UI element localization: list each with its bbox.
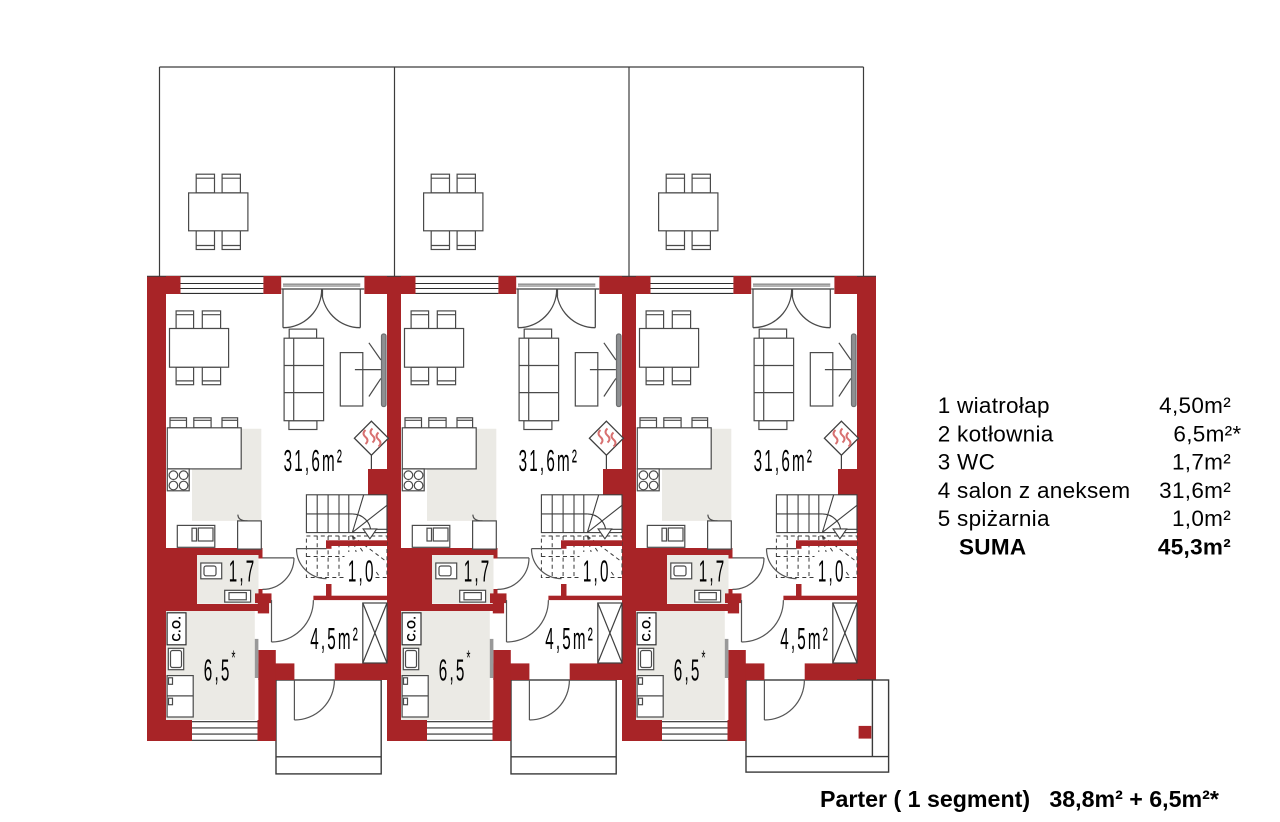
svg-text:Parter ( 1 segment) 38,8m² +: Parter ( 1 segment) 38,8m² + 6,5m²* [820, 786, 1219, 812]
svg-text:4 salon z aneksem: 4 salon z aneksem [938, 478, 1131, 503]
svg-text:45,3m²: 45,3m² [1158, 534, 1231, 559]
svg-text:5 spiżarnia: 5 spiżarnia [938, 506, 1050, 531]
svg-text:4,50m²: 4,50m² [1159, 393, 1231, 418]
svg-text:SUMA: SUMA [959, 534, 1026, 559]
svg-text:1,7m²: 1,7m² [1172, 450, 1231, 475]
svg-text:3 WC: 3 WC [938, 450, 995, 475]
svg-text:1 wiatrołap: 1 wiatrołap [938, 393, 1050, 418]
svg-text:2 kotłownia: 2 kotłownia [938, 421, 1054, 446]
svg-text:1,0m²: 1,0m² [1172, 506, 1231, 531]
svg-text:31,6m²: 31,6m² [1159, 478, 1231, 503]
svg-text:6,5m²*: 6,5m²* [1173, 421, 1241, 446]
